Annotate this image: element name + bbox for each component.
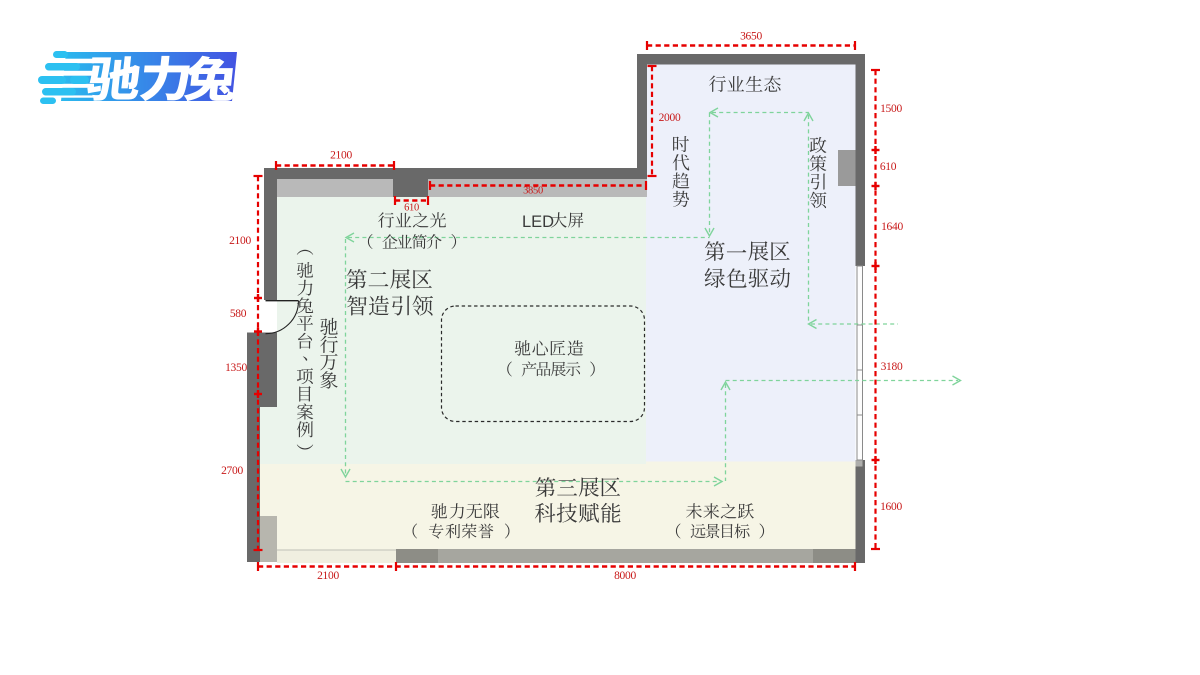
svg-text:610: 610 [404, 203, 419, 214]
svg-text:1500: 1500 [880, 103, 902, 115]
svg-text:580: 580 [230, 308, 247, 320]
svg-text:2100: 2100 [330, 150, 352, 162]
svg-text:1600: 1600 [880, 501, 902, 513]
svg-text:8000: 8000 [614, 570, 636, 582]
svg-text:2100: 2100 [317, 570, 339, 582]
svg-text:3180: 3180 [881, 361, 903, 373]
svg-text:LED: LED [522, 213, 554, 231]
svg-text:610: 610 [880, 161, 897, 173]
svg-text:1350: 1350 [225, 362, 247, 374]
svg-text:1640: 1640 [881, 221, 903, 233]
svg-text:2100: 2100 [229, 235, 251, 247]
svg-text:3650: 3650 [740, 31, 762, 43]
svg-text:2000: 2000 [659, 112, 681, 124]
svg-text:2700: 2700 [221, 465, 243, 477]
svg-text:3850: 3850 [523, 186, 543, 197]
